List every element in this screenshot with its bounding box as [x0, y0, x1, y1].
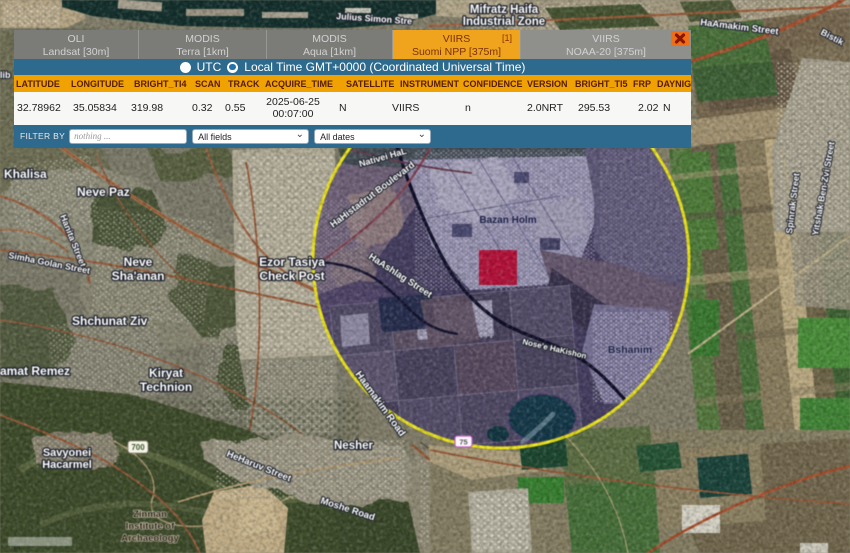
svg-text:lib: lib	[0, 70, 11, 80]
svg-text:Zinman: Zinman	[133, 509, 167, 520]
svg-text:Khalisa: Khalisa	[4, 167, 47, 181]
svg-text:700: 700	[131, 443, 145, 452]
svg-text:Check Post: Check Post	[259, 269, 324, 283]
svg-text:Bshanim: Bshanim	[608, 344, 652, 356]
svg-text:Bazan Holm: Bazan Holm	[479, 215, 536, 226]
svg-text:Sha'anan: Sha'anan	[112, 269, 165, 283]
svg-text:Savyonei: Savyonei	[43, 447, 91, 459]
svg-text:Kiryat: Kiryat	[149, 366, 183, 380]
svg-text:amat Remez: amat Remez	[0, 364, 70, 378]
svg-text:Neve Paz: Neve Paz	[77, 185, 130, 199]
svg-text:Institute of: Institute of	[126, 521, 175, 532]
svg-text:Industrial Zone: Industrial Zone	[463, 16, 545, 28]
svg-text:Nesher: Nesher	[334, 440, 374, 452]
svg-text:Archaeology: Archaeology	[121, 533, 179, 544]
svg-text:Neve: Neve	[124, 255, 153, 269]
svg-text:Shchunat Ziv: Shchunat Ziv	[72, 314, 148, 328]
svg-text:Ezor Tasiya: Ezor Tasiya	[259, 255, 325, 269]
svg-text:75: 75	[459, 438, 467, 447]
svg-text:Hacarmel: Hacarmel	[42, 459, 92, 471]
svg-text:Technion: Technion	[140, 380, 192, 394]
svg-text:Mifratz Haifa: Mifratz Haifa	[470, 4, 539, 16]
svg-text:m: m	[14, 544, 20, 553]
